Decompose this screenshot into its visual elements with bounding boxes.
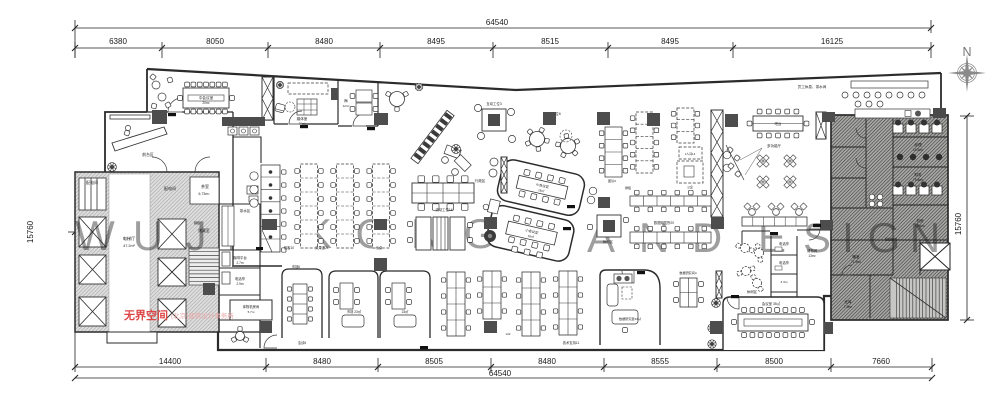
svg-text:行政区: 行政区 xyxy=(475,178,486,183)
svg-text:7.9m²: 7.9m² xyxy=(844,305,852,309)
svg-text:8505: 8505 xyxy=(425,357,443,366)
svg-text:8495: 8495 xyxy=(427,37,445,46)
svg-text:梅: 梅 xyxy=(344,98,348,103)
svg-text:13m²: 13m² xyxy=(808,254,815,258)
svg-text:U: U xyxy=(133,212,163,259)
svg-text:I: I xyxy=(842,214,854,261)
svg-text:流动工位16: 流动工位16 xyxy=(435,207,452,212)
svg-text:休闲区: 休闲区 xyxy=(603,239,614,244)
svg-text:互动工位3: 互动工位3 xyxy=(486,101,502,106)
svg-text:J: J xyxy=(186,212,207,259)
svg-text:数据研究室23㎡: 数据研究室23㎡ xyxy=(619,316,642,321)
svg-text:市场6: 市场6 xyxy=(292,264,300,269)
svg-text:长桌: 长桌 xyxy=(376,245,383,250)
svg-text:64540: 64540 xyxy=(489,369,512,378)
svg-text:12m²: 12m² xyxy=(343,104,350,108)
svg-text:数据研究所20: 数据研究所20 xyxy=(654,220,674,225)
svg-text:数据研究间4: 数据研究间4 xyxy=(679,270,696,275)
svg-text:14400: 14400 xyxy=(159,357,182,366)
svg-text:8515: 8515 xyxy=(541,37,559,46)
svg-text:中会议室: 中会议室 xyxy=(199,95,214,100)
svg-text:G: G xyxy=(868,214,901,261)
svg-text:15760: 15760 xyxy=(954,212,963,235)
svg-text:3.3m: 3.3m xyxy=(781,280,788,284)
svg-text:8050: 8050 xyxy=(206,37,224,46)
svg-text:20m²: 20m² xyxy=(299,122,306,126)
svg-text:(北京)建筑设计事务所: (北京)建筑设计事务所 xyxy=(171,311,234,320)
svg-text:5.7m: 5.7m xyxy=(248,310,255,314)
svg-text:配电间: 配电间 xyxy=(86,179,98,185)
svg-text:绿植: 绿植 xyxy=(625,185,631,190)
svg-text:16125: 16125 xyxy=(821,37,844,46)
svg-text:15760: 15760 xyxy=(26,220,35,243)
svg-text:会议室 35㎡: 会议室 35㎡ xyxy=(762,301,781,306)
svg-text:财务: 财务 xyxy=(914,172,922,177)
svg-text:吧台: 吧台 xyxy=(775,121,782,126)
svg-text:无界空间: 无界空间 xyxy=(123,308,168,322)
svg-text:休闲区: 休闲区 xyxy=(747,289,758,294)
svg-text:效果通2L: 效果通2L xyxy=(315,245,329,250)
svg-text:市场 23㎡: 市场 23㎡ xyxy=(347,309,362,314)
svg-text:前台区: 前台区 xyxy=(142,152,154,157)
svg-text:极客10: 极客10 xyxy=(284,245,294,250)
svg-text:75.8m²: 75.8m² xyxy=(913,178,923,182)
svg-text:储物间: 储物间 xyxy=(807,248,818,253)
svg-text:1人间14: 1人间14 xyxy=(685,152,696,156)
svg-text:64540: 64540 xyxy=(486,18,509,27)
svg-text:2.7m: 2.7m xyxy=(236,261,243,265)
svg-text:洽谈6: 洽谈6 xyxy=(298,340,307,345)
svg-text:20m²: 20m² xyxy=(202,101,209,105)
svg-text:员工休息、茶水间: 员工休息、茶水间 xyxy=(798,84,827,89)
svg-text:电话亭: 电话亭 xyxy=(779,260,790,265)
svg-text:体物机房间: 体物机房间 xyxy=(243,304,259,309)
svg-text:咖啡平台: 咖啡平台 xyxy=(233,255,247,260)
svg-text:媒体室: 媒体室 xyxy=(297,116,308,121)
svg-text:团队6: 团队6 xyxy=(608,178,616,183)
svg-text:茶室: 茶室 xyxy=(201,183,209,189)
svg-text:8555: 8555 xyxy=(651,357,669,366)
svg-text:2.9m: 2.9m xyxy=(236,282,243,286)
svg-text:x22: x22 xyxy=(506,332,511,336)
svg-text:公盒: 公盒 xyxy=(687,185,693,189)
svg-text:8480: 8480 xyxy=(538,357,556,366)
svg-text:7660: 7660 xyxy=(872,357,890,366)
svg-text:8500: 8500 xyxy=(765,357,783,366)
svg-text:经理: 经理 xyxy=(914,142,922,147)
svg-text:电话亭: 电话亭 xyxy=(235,276,246,281)
svg-text:多功能厅: 多功能厅 xyxy=(767,143,781,148)
svg-text:茶水区: 茶水区 xyxy=(240,208,251,213)
svg-text:8480: 8480 xyxy=(313,357,331,366)
svg-text:配电间: 配电间 xyxy=(164,185,176,191)
svg-text:技术支持11: 技术支持11 xyxy=(563,340,580,345)
svg-text:N: N xyxy=(910,214,940,261)
svg-text:23㎡: 23㎡ xyxy=(402,309,410,314)
svg-text:电话亭: 电话亭 xyxy=(779,241,790,246)
svg-text:8495: 8495 xyxy=(661,37,679,46)
svg-text:仓库: 仓库 xyxy=(844,299,852,304)
svg-text:W: W xyxy=(75,212,115,259)
svg-text:6.73m²: 6.73m² xyxy=(199,192,211,196)
svg-text:6380: 6380 xyxy=(109,37,127,46)
svg-text:8480: 8480 xyxy=(315,37,333,46)
svg-text:15.5m²: 15.5m² xyxy=(913,148,923,152)
